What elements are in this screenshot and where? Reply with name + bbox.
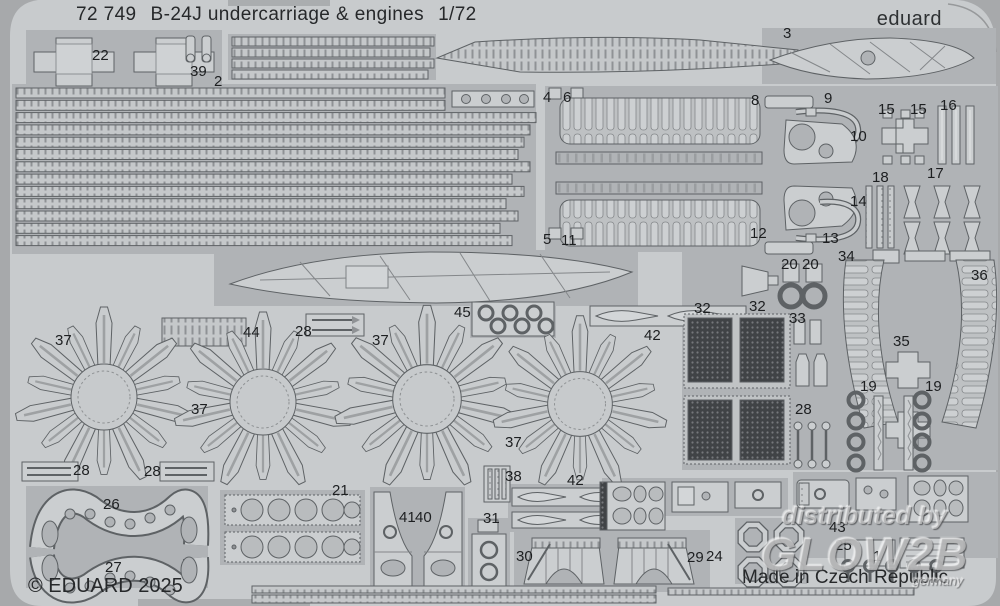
part-18-strips xyxy=(866,186,894,248)
part-number-label: 16 xyxy=(940,98,957,113)
photo-etch-sheet-photo: 72 749B-24J undercarriage & engines1/72 … xyxy=(0,0,1000,606)
part-number-label: 36 xyxy=(971,268,988,283)
part-plate-with-hole xyxy=(797,480,849,508)
part-number-label: 39 xyxy=(190,64,207,79)
part-number-label: 37 xyxy=(191,402,208,417)
part-number-label: 15 xyxy=(910,102,927,117)
part-16-strips xyxy=(938,106,974,164)
part-comb-plate xyxy=(856,478,896,510)
sheet-scale: 1/72 xyxy=(438,4,477,25)
brand-logo: eduard xyxy=(877,8,942,31)
part-number-label: 24 xyxy=(706,549,723,564)
part-number-label: 38 xyxy=(505,469,522,484)
part-1-louver-plate xyxy=(845,538,964,568)
part-29-fan xyxy=(614,538,694,584)
part-number-label: 21 xyxy=(332,483,349,498)
part-number-label: 15 xyxy=(878,102,895,117)
part-circle-strip xyxy=(452,91,534,107)
part-number-label: 41 xyxy=(399,510,416,525)
part-number-label: 1 xyxy=(873,549,881,564)
part-number-label: 42 xyxy=(567,473,584,488)
part-number-label: 32 xyxy=(694,301,711,316)
part-number-label: 28 xyxy=(144,464,161,479)
part-number-label: 31 xyxy=(483,511,500,526)
part-30-fan xyxy=(524,538,604,584)
part-15-brackets xyxy=(882,110,928,164)
part-number-label: 29 xyxy=(687,550,704,565)
part-number-label: 42 xyxy=(644,328,661,343)
part-number-label: 19 xyxy=(860,379,877,394)
sheet-header: 72 749B-24J undercarriage & engines1/72 xyxy=(76,4,477,26)
part-number-label: 30 xyxy=(516,549,533,564)
part-number-label: 19 xyxy=(925,379,942,394)
part-number-label: 43 xyxy=(829,520,846,535)
part-number-label: 2 xyxy=(214,74,222,89)
part-number-label: 9 xyxy=(824,91,832,106)
part-number-label: 17 xyxy=(927,166,944,181)
part-number-label: 20 xyxy=(802,257,819,272)
part-number-label: 45 xyxy=(454,305,471,320)
part-number-label: 25 xyxy=(835,538,852,553)
part-number-label: 37 xyxy=(55,333,72,348)
fret-artwork xyxy=(0,0,1000,606)
part-number-label: 32 xyxy=(749,299,766,314)
part-quilt-plate xyxy=(600,482,665,530)
part-number-label: 22 xyxy=(92,48,109,63)
part-number-label: 18 xyxy=(872,170,889,185)
part-number-label: 28 xyxy=(295,324,312,339)
part-number-label: 40 xyxy=(415,510,432,525)
part-10-gusset xyxy=(784,120,856,164)
sheet-title: B-24J undercarriage & engines xyxy=(151,4,425,25)
part-number-label: 20 xyxy=(781,257,798,272)
part-number-label: 5 xyxy=(543,232,551,247)
copyright-text: © EDUARD 2025 xyxy=(28,575,183,598)
part-number-label: 33 xyxy=(789,311,806,326)
part-number-label: 26 xyxy=(103,497,120,512)
part-number-label: 10 xyxy=(850,129,867,144)
part-number-label: 34 xyxy=(838,249,855,264)
part-number-label: 12 xyxy=(750,226,767,241)
part-number-label: 6 xyxy=(563,90,571,105)
part-number-label: 37 xyxy=(372,333,389,348)
part-number-label: 28 xyxy=(73,463,90,478)
part-28-strip-mid xyxy=(306,314,364,336)
part-number-label: 37 xyxy=(505,435,522,450)
part-number-label: 28 xyxy=(795,402,812,417)
part-number-label: 44 xyxy=(243,325,260,340)
part-number-label: 3 xyxy=(783,26,791,41)
made-in-text: Made in Czech Republic xyxy=(742,567,948,589)
part-number-label: 27 xyxy=(105,560,122,575)
part-number-label: 14 xyxy=(850,194,867,209)
part-45-rings xyxy=(472,302,554,336)
part-14-gusset xyxy=(784,186,856,230)
part-small-plates xyxy=(672,482,781,512)
part-number-label: 35 xyxy=(893,334,910,349)
part-number-label: 4 xyxy=(543,90,551,105)
sheet-code: 72 749 xyxy=(76,4,137,25)
part-number-label: 11 xyxy=(561,233,577,248)
part-43-quilt-plate xyxy=(908,476,968,522)
part-number-label: 13 xyxy=(822,231,839,246)
part-number-label: 8 xyxy=(751,93,759,108)
